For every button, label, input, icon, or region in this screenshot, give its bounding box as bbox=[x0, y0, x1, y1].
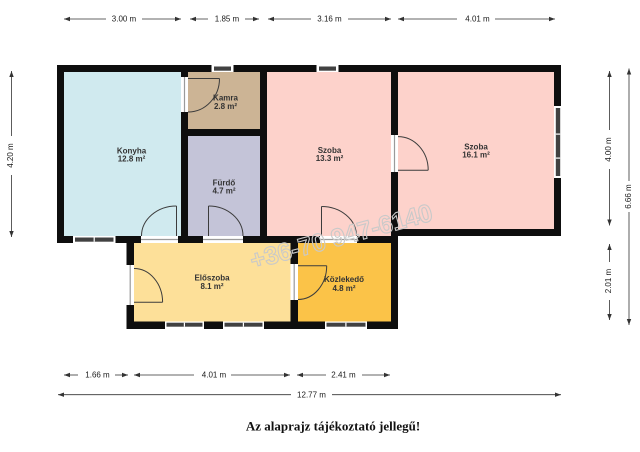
svg-text:8.1 m²: 8.1 m² bbox=[200, 282, 223, 291]
svg-text:12.8 m²: 12.8 m² bbox=[118, 155, 146, 164]
svg-text:2.8 m²: 2.8 m² bbox=[214, 102, 237, 111]
svg-text:4.7 m²: 4.7 m² bbox=[212, 187, 235, 196]
svg-text:6.66 m: 6.66 m bbox=[624, 184, 633, 209]
svg-text:4.00 m: 4.00 m bbox=[604, 137, 613, 162]
svg-text:3.00 m: 3.00 m bbox=[112, 15, 137, 24]
svg-text:4.01 m: 4.01 m bbox=[202, 371, 227, 380]
svg-text:Az alaprajz tájékoztató jelleg: Az alaprajz tájékoztató jellegű! bbox=[246, 419, 420, 434]
svg-text:3.16 m: 3.16 m bbox=[317, 15, 342, 24]
svg-text:2.01 m: 2.01 m bbox=[604, 268, 613, 293]
svg-text:1.66 m: 1.66 m bbox=[85, 371, 110, 380]
svg-text:4.8 m²: 4.8 m² bbox=[332, 284, 355, 293]
svg-text:16.1 m²: 16.1 m² bbox=[462, 151, 490, 160]
svg-text:12.77 m: 12.77 m bbox=[297, 390, 326, 399]
svg-text:4.20 m: 4.20 m bbox=[6, 143, 15, 168]
svg-text:4.01 m: 4.01 m bbox=[465, 15, 490, 24]
svg-text:13.3 m²: 13.3 m² bbox=[316, 154, 344, 163]
svg-text:2.41 m: 2.41 m bbox=[331, 371, 356, 380]
svg-text:1.85 m: 1.85 m bbox=[215, 15, 240, 24]
svg-text:Közlekedő: Közlekedő bbox=[324, 275, 364, 284]
